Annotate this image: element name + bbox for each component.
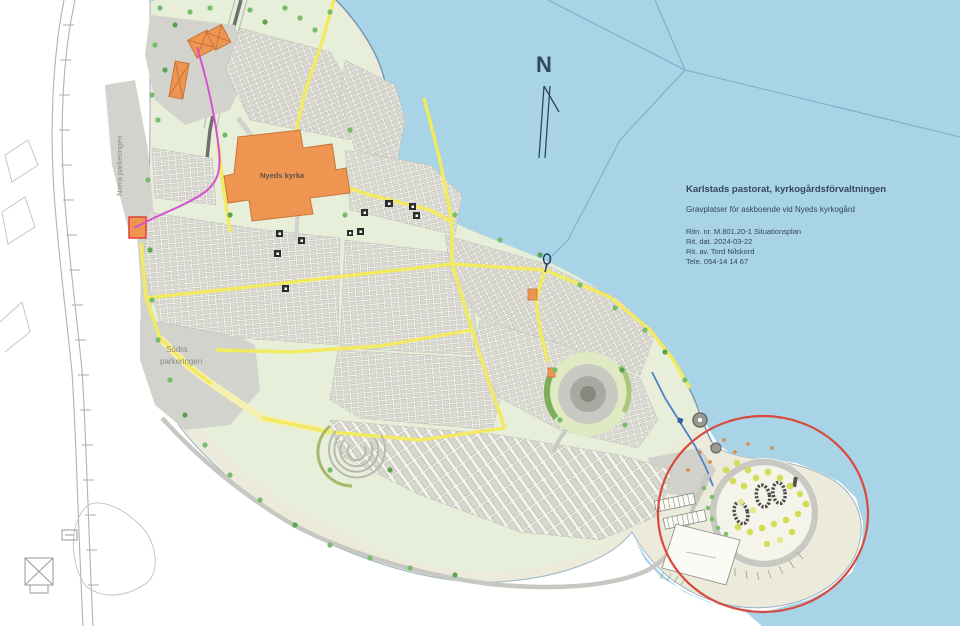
title-drawing-no: Ritn. nr. M.801.20-1 Situationsplan [686,227,801,236]
church-label: Nyeds kyrka [260,171,305,180]
north-parking [105,80,155,236]
red-outlined-hut [129,217,146,238]
south-parking-label-line2: parkeringen [160,357,202,366]
south-parking-label-line1: Södra [166,345,188,354]
north-parking-label: Norra parkeringen [115,136,124,196]
north-arrow-label: N [536,52,552,77]
title-org: Karlstads pastorat, kyrkogårdsförvaltnin… [686,184,886,195]
west-road-line-b [52,0,83,626]
title-subtitle: Gravplatser för askboende vid Nyeds kyrk… [686,205,855,214]
west-road-line-a [62,0,93,626]
title-phone: Tele. 054-14 14 67 [686,257,748,266]
outbuilding-square-x [25,530,77,593]
site-plan-map: N Nyeds kyrka Södra parkeringen Norra pa… [0,0,960,626]
title-date: Rit. dat. 2024-03-22 [686,237,752,246]
title-author: Rit. av. Tord Nilskord [686,247,755,256]
site-plan-page: N Nyeds kyrka Södra parkeringen Norra pa… [0,0,960,626]
shore-hut [528,289,537,300]
